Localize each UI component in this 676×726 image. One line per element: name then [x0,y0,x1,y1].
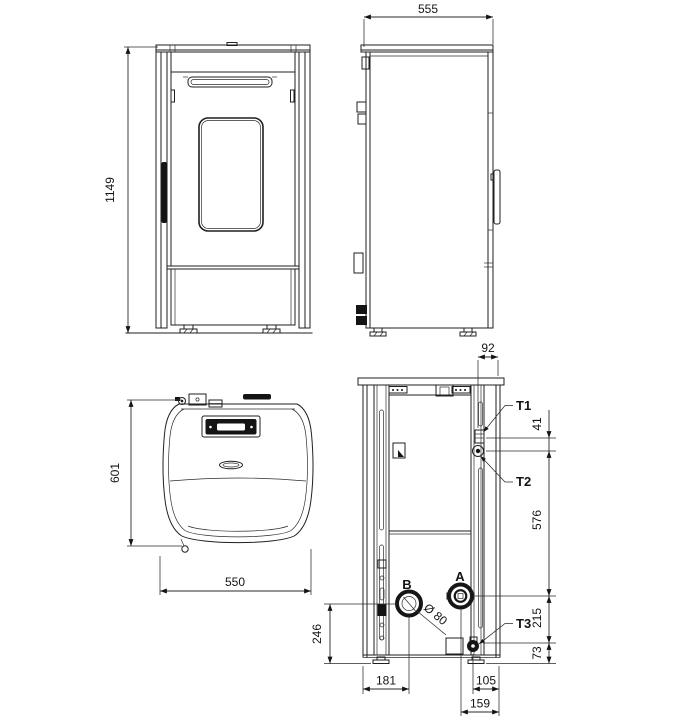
rear-inspection-square [446,638,463,654]
front-top-notch [227,43,237,46]
label-t3: T3 [516,616,531,631]
side-door-handle [491,170,500,224]
rear-right-rail [471,385,484,655]
rear-flue-outlet-a [447,585,474,608]
top-probe-cable [181,539,188,552]
top-dim-width: 550 [160,549,311,595]
side-body [354,45,500,336]
front-view: 1149 [103,43,312,334]
rear-t3-fitting [467,637,479,652]
front-door-window [199,118,263,231]
label-flue-diameter: Ø 80 [421,601,450,629]
side-rear-bracket-1 [357,102,366,112]
top-edge-fittings [175,394,271,407]
label-t2: T2 [516,474,531,489]
front-air-grille [183,77,277,87]
side-foot-right [460,328,476,336]
top-hinge-strip [243,394,271,400]
side-view: 555 [354,2,500,336]
rear-rating-label [393,443,405,458]
rear-body [358,378,504,664]
front-top-plate [156,45,310,52]
rear-left-rail [374,385,389,655]
stove-dimensional-drawing: 1149 555 [0,0,676,726]
label-a: A [455,569,465,584]
rear-right-offset-value: 92 [481,341,495,355]
top-width-value: 550 [225,575,245,589]
rear-dim-b-floor-value: 246 [310,624,324,644]
front-pedestal [171,269,295,325]
front-height-value: 1149 [103,177,117,203]
top-view: 601 550 [108,394,313,595]
side-rear-connector-2 [356,316,367,325]
side-foot-left [370,328,386,336]
rear-right-dim-chain: 41 576 215 73 [473,410,556,664]
side-rear-box [354,253,363,273]
rear-air-inlet-b [397,592,421,616]
front-door-handle [162,162,168,223]
label-b: B [402,577,411,592]
rear-dim-left-to-b-value: 181 [376,674,396,688]
front-body [126,43,312,334]
front-dim-height: 1149 [103,47,158,333]
top-body [163,394,313,552]
top-lid-handle [220,461,243,469]
side-depth-value: 555 [418,2,438,16]
rear-dim-a-to-right-value: 159 [470,697,490,711]
top-display-panel [202,416,260,437]
rear-t1-fitting [475,430,484,443]
rear-dim-t1-t2-value: 41 [530,417,544,431]
rear-power-connector [378,604,387,616]
rear-view: T1 T2 T3 A B Ø 80 92 41 [310,341,556,716]
rear-dim-t3-to-right-value: 105 [476,674,496,688]
side-rear-bracket-2 [358,114,366,124]
top-seam-line [170,478,306,481]
top-door-edge-arc [188,526,288,531]
label-t1: T1 [516,398,531,413]
top-depth-value: 601 [108,463,122,483]
side-dim-depth: 555 [364,2,493,47]
rear-foot-right [468,657,484,664]
side-rear-connector-1 [356,305,367,314]
front-right-panel [299,52,310,328]
top-dim-depth: 601 [108,400,182,546]
rear-foot-left [373,657,389,664]
technical-drawing-sheet: 1149 555 [0,0,676,726]
rear-top-plate [358,378,504,385]
side-top-plate [361,45,493,52]
rear-dim-t2-a-value: 576 [530,510,544,530]
top-junction-box [189,394,206,405]
front-foot-left [180,325,197,333]
rear-vent-strip [389,385,470,396]
rear-dim-t3-floor-value: 73 [530,646,544,660]
rear-dim-a-t3-value: 215 [530,608,544,628]
front-foot-right [263,325,280,333]
